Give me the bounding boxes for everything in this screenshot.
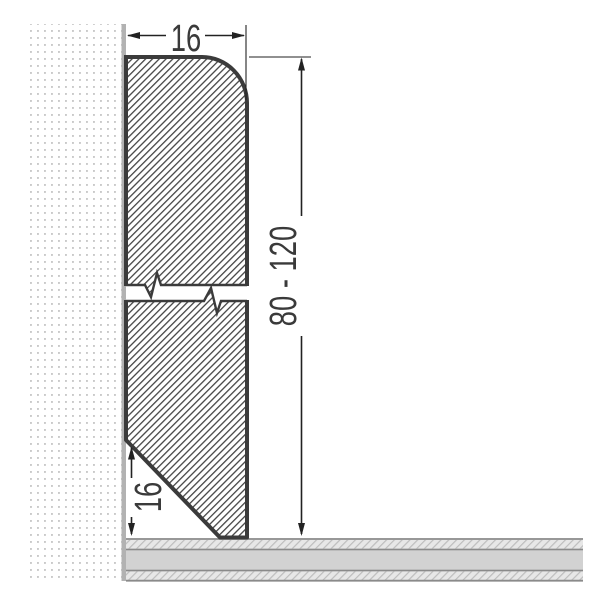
- width-dimension-label: 16: [171, 20, 201, 58]
- chamfer-dimension-label: 16: [130, 482, 168, 512]
- arrow-up-icon: [298, 58, 305, 71]
- arrow-left-icon: [127, 32, 140, 39]
- floor: [126, 539, 583, 581]
- skirting-upper-section: [126, 57, 247, 297]
- arrow-right-icon: [232, 32, 245, 39]
- skirting-profile: [126, 57, 247, 538]
- floor-underlay-hatch-bottom: [126, 572, 583, 581]
- floor-underlay-hatch-top: [126, 540, 583, 549]
- technical-drawing-canvas: 16 80 - 120 16: [0, 0, 604, 604]
- chamfer-arrow-down-icon: [128, 523, 135, 536]
- height-dimension-label: 80 - 120: [265, 226, 303, 326]
- wall: [27, 24, 126, 581]
- arrow-down-icon: [298, 523, 305, 536]
- floor-core-band: [126, 551, 583, 570]
- wall-dotted-area: [27, 24, 122, 581]
